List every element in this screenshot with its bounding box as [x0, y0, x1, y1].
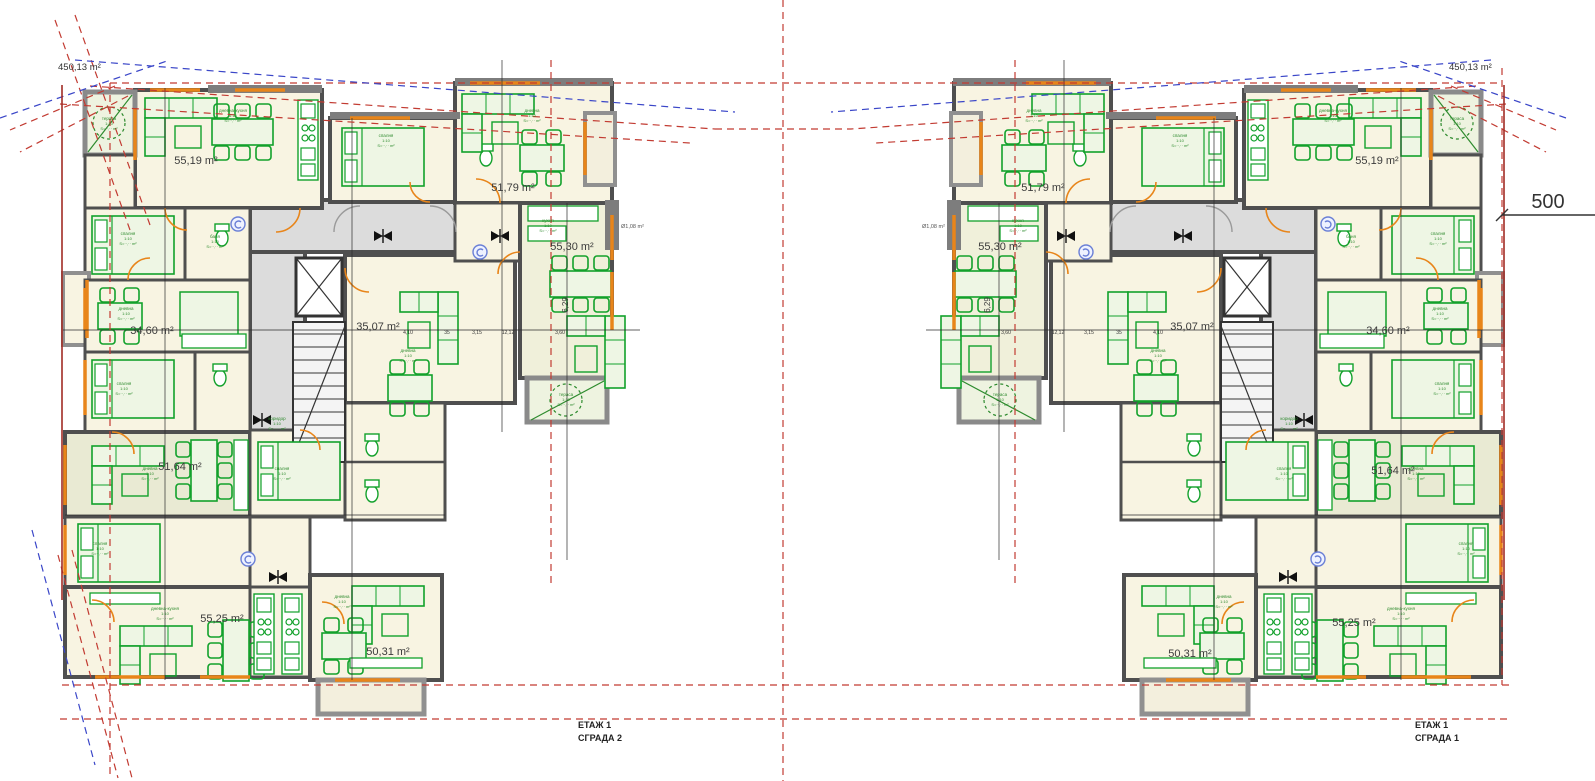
- room-tag-area: S=··,·· m²: [1342, 244, 1360, 249]
- dimension-text: 3,60: [555, 330, 565, 336]
- room-tag-area: S=··,·· m²: [539, 228, 557, 233]
- apartment-area-label: 55,19 m²: [1355, 155, 1399, 167]
- building-2-plan: [63, 60, 640, 714]
- plan-title-right-line2: СГРАДА 1: [1415, 733, 1459, 743]
- apartment-area-label: 55,25 m²: [1332, 617, 1376, 629]
- room-tag-area: S=··,·· m²: [206, 244, 224, 249]
- site-area-label-left: 450,13 m²: [58, 62, 101, 73]
- dimension-text: 3,15: [1084, 330, 1094, 336]
- room-tag-area: S=··,·· m²: [224, 118, 242, 123]
- dimension-text: 35: [1116, 330, 1122, 336]
- plan-title-left-line1: ЕТАЖ 1: [578, 720, 611, 730]
- apartment-area-label: 55,19 m²: [174, 155, 218, 167]
- dimension-text: 3,15: [472, 330, 482, 336]
- room-tag-area: S=··,·· m²: [141, 476, 159, 481]
- apartment-area-label: 50,31 m²: [1168, 648, 1212, 660]
- room-tag-area: S=··,·· m²: [119, 241, 137, 246]
- dimension-text: 4,10: [1153, 330, 1163, 336]
- dimension-500-value: 500: [1531, 191, 1564, 213]
- room-tag-area: S=··,·· m²: [1324, 118, 1342, 123]
- room-tag-area: S=··,·· m²: [399, 358, 417, 363]
- plan-title-left: ЕТАЖ 1 СГРАДА 2: [578, 720, 622, 743]
- dimension-text: 35: [444, 330, 450, 336]
- room-tag-area: S=··,·· m²: [1280, 426, 1298, 431]
- apartment-area-label: 51,79 m²: [491, 182, 535, 194]
- apartment-area-label: 34,60 m²: [130, 325, 174, 337]
- plan-title-left-line2: СГРАДА 2: [578, 733, 622, 743]
- site-area-label-right: 450,13 m²: [1449, 62, 1492, 73]
- room-tag-area: S=··,·· m²: [1275, 476, 1293, 481]
- room-tag-area: S=··,·· m²: [991, 402, 1009, 407]
- room-tag-area: S=··,·· m²: [377, 143, 395, 148]
- dimension-text: 12,12: [1052, 330, 1065, 336]
- room-tag-area: S=··,·· m²: [1448, 126, 1466, 131]
- room-tag-area: S=··,·· m²: [268, 426, 286, 431]
- room-tag-area: S=··,·· m²: [1392, 616, 1410, 621]
- small-area-label-right: Ø1,08 m²: [922, 224, 945, 230]
- room-tag-area: S=··,·· m²: [1431, 316, 1449, 321]
- room-tag-area: S=··,·· m²: [1215, 604, 1233, 609]
- room-tag-area: S=··,·· m²: [333, 604, 351, 609]
- apartment-area-label: 50,31 m²: [366, 646, 410, 658]
- small-area-label-left: Ø1,08 m²: [621, 224, 644, 230]
- room-tag-area: S=··,·· m²: [523, 118, 541, 123]
- room-tag-area: S=··,·· m²: [1009, 228, 1027, 233]
- dimension-text: 12,12: [502, 330, 515, 336]
- room-tag-area: S=··,·· m²: [1149, 358, 1167, 363]
- room-tag-area: S=··,·· m²: [1025, 118, 1043, 123]
- room-tag-area: S=··,·· m²: [273, 476, 291, 481]
- apartment-area-label: 51,79 m²: [1021, 182, 1065, 194]
- room-tag-area: S=··,·· m²: [1433, 391, 1451, 396]
- room-tag-area: S=··,·· m²: [1171, 143, 1189, 148]
- apartment-area-label: 6,29: [983, 297, 992, 313]
- apartment-area-label: 34,60 m²: [1366, 325, 1410, 337]
- dimension-text: 4,10: [403, 330, 413, 336]
- plan-title-right-line1: ЕТАЖ 1: [1415, 720, 1448, 730]
- room-tag-area: S=··,·· m²: [1457, 551, 1475, 556]
- room-tag-area: S=··,·· m²: [1407, 476, 1425, 481]
- plan-title-right: ЕТАЖ 1 СГРАДА 1: [1415, 720, 1459, 743]
- apartment-area-label: 35,07 m²: [1170, 321, 1214, 333]
- apartment-area-label: 55,30 m²: [978, 241, 1022, 253]
- room-tag-area: S=··,·· m²: [100, 126, 118, 131]
- apartment-area-label: 51,64 m²: [158, 461, 202, 473]
- room-tag-area: S=··,·· m²: [91, 551, 109, 556]
- room-tag-area: S=··,·· m²: [156, 616, 174, 621]
- room-tag-area: S=··,·· m²: [1429, 241, 1447, 246]
- apartment-area-label: 35,07 m²: [356, 321, 400, 333]
- floor-plan-sheet: 500 450,13 m² 450,13 m² Ø1,08 m² Ø1,08 m…: [0, 0, 1595, 781]
- room-tag-area: S=··,·· m²: [557, 402, 575, 407]
- building-1-plan: [926, 60, 1503, 714]
- apartment-area-label: 55,30 m²: [550, 241, 594, 253]
- apartment-area-label: 6,29: [561, 297, 570, 313]
- dimension-text: 3,60: [1001, 330, 1011, 336]
- apartment-area-label: 55,25 m²: [200, 613, 244, 625]
- dimension-500: 500: [1496, 191, 1595, 221]
- floor-plan-canvas: 500 450,13 m² 450,13 m² Ø1,08 m² Ø1,08 m…: [0, 0, 1595, 781]
- room-tag-area: S=··,·· m²: [115, 391, 133, 396]
- room-tag-area: S=··,·· m²: [117, 316, 135, 321]
